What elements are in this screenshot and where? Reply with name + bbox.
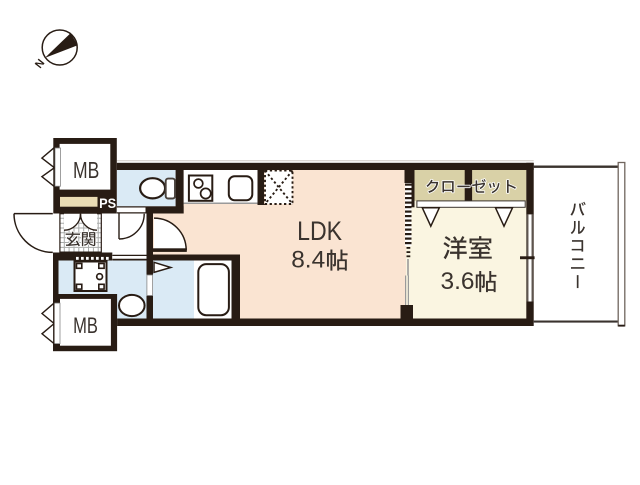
svg-text:PS: PS [99,195,116,211]
svg-text:LDK: LDK [297,216,342,246]
svg-text:3.6: 3.6 [441,268,475,295]
svg-text:MB: MB [73,313,98,338]
svg-text:8.4: 8.4 [291,247,325,274]
svg-text:MB: MB [73,157,99,183]
